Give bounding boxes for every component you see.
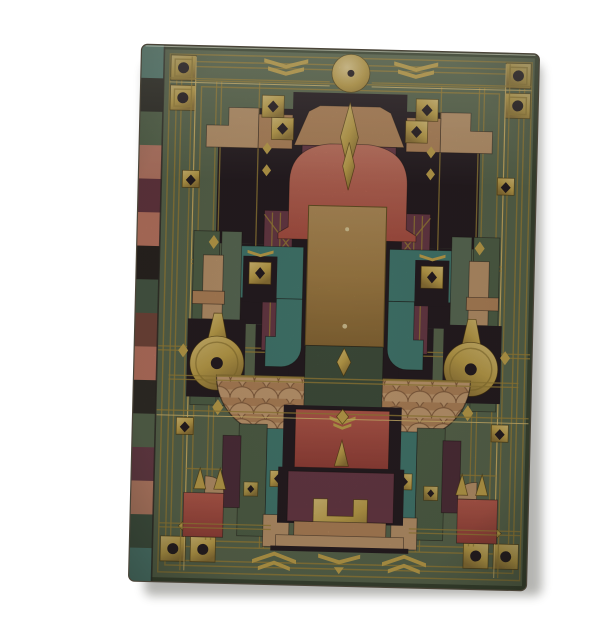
top-light-sheen [128,44,539,591]
journal-cover-photo [40,16,600,616]
book-clip-group [128,44,539,591]
product-photo [40,16,600,616]
journal-book [128,44,539,591]
